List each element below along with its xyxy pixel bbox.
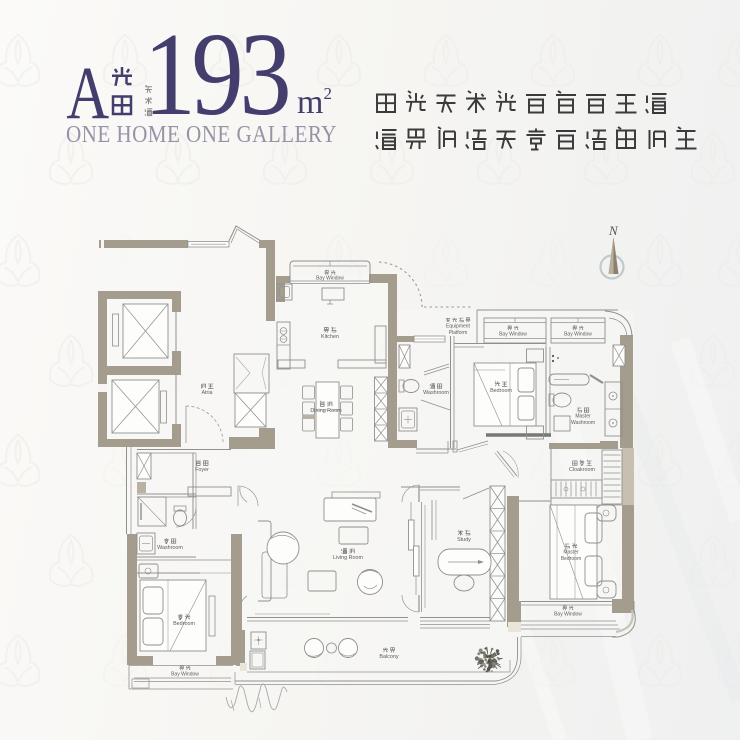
svg-text:m2: m2 [297,84,332,121]
svg-text:Platform: Platform [449,330,468,336]
svg-text:Study: Study [457,537,471,543]
svg-text:Washroom: Washroom [571,420,595,426]
svg-text:Master: Master [575,414,591,420]
svg-text:Master: Master [563,550,579,556]
svg-text:Balcony: Balcony [379,654,398,660]
svg-text:Equipment: Equipment [446,324,471,330]
svg-text:Bay Window: Bay Window [316,276,344,282]
svg-text:ONE HOME ONE GALLERY: ONE HOME ONE GALLERY [66,121,337,148]
svg-text:Dining Room: Dining Room [310,408,342,414]
svg-text:Washroom: Washroom [157,545,183,551]
svg-text:Washroom: Washroom [423,390,449,396]
svg-text:Cloakroom: Cloakroom [569,467,596,473]
svg-text:Bay Window: Bay Window [171,672,199,678]
svg-text:Bedroom: Bedroom [173,621,195,627]
svg-text:Bay Window: Bay Window [564,332,592,338]
svg-text:Kitchen: Kitchen [321,334,339,340]
svg-text:Bedroom: Bedroom [490,388,512,394]
svg-text:Atria: Atria [201,390,212,396]
svg-text:Foyer: Foyer [195,467,209,473]
svg-text:Bay Window: Bay Window [499,332,527,338]
svg-text:Living Room: Living Room [333,555,363,561]
svg-text:N: N [608,223,619,238]
svg-text:Bedroom: Bedroom [561,556,581,562]
svg-text:Bay Window: Bay Window [554,612,582,618]
